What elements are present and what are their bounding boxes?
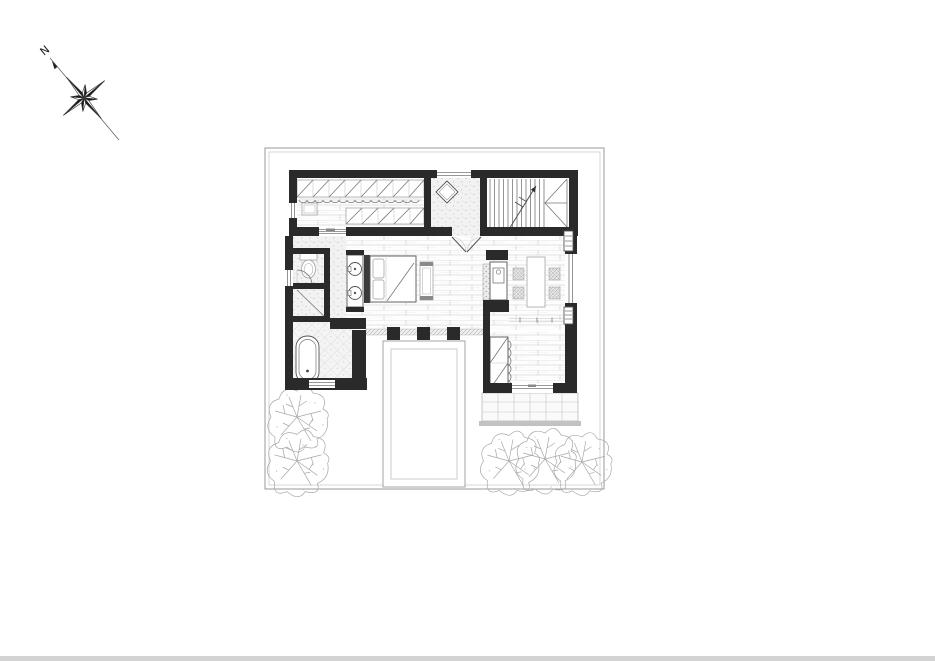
hall-floor [431, 173, 481, 236]
wardrobe-row-top [297, 180, 424, 197]
headboard [364, 255, 370, 303]
dining-table [527, 257, 545, 307]
compass-star [46, 60, 122, 136]
terrace-edge [479, 421, 581, 426]
north-arrowhead [52, 61, 58, 69]
floor-plan-drawing: N [0, 0, 935, 661]
double-bed [364, 255, 416, 303]
counter-unit [483, 262, 507, 300]
bathtub [296, 336, 319, 383]
column [417, 327, 430, 340]
north-label: N [38, 43, 53, 58]
tub-drain [306, 370, 309, 373]
column [387, 327, 400, 340]
chair [513, 287, 524, 299]
radiator [564, 307, 573, 324]
chair [549, 287, 560, 299]
terrace [479, 393, 581, 426]
window [565, 254, 577, 303]
pillow [373, 259, 384, 278]
window [437, 170, 471, 178]
window [309, 380, 335, 388]
stone-strip [483, 264, 490, 300]
chair [549, 268, 560, 280]
toilet-tank [300, 253, 317, 260]
compass-rose: N [38, 43, 122, 140]
trees-right [480, 428, 612, 495]
window [289, 203, 297, 218]
vanity [347, 255, 363, 307]
trees-left [267, 386, 329, 496]
bed-bench [420, 262, 433, 300]
chair [513, 268, 524, 280]
floor-plan-canvas: N [0, 0, 935, 661]
radiator [564, 231, 573, 251]
bottom-bar [0, 656, 935, 661]
void-below [383, 341, 465, 487]
window [285, 270, 293, 286]
column [447, 327, 460, 340]
study-wardrobe [490, 337, 511, 389]
pillow [373, 280, 384, 299]
